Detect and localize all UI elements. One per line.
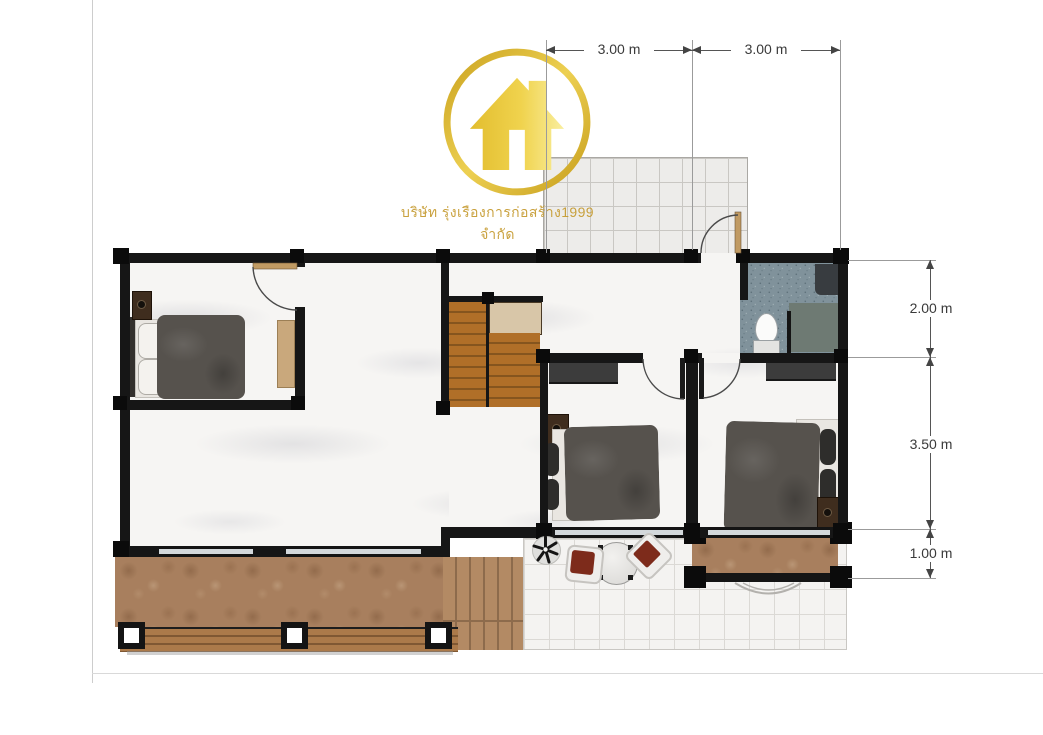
dimension-arrow bbox=[692, 46, 701, 54]
extension-line bbox=[848, 357, 936, 358]
logo-house-icon bbox=[468, 72, 566, 170]
dimension-arrow bbox=[926, 520, 934, 529]
bedroom1-door-arc-icon bbox=[253, 267, 297, 310]
extension-line bbox=[840, 40, 841, 250]
patio-chair-left-seat bbox=[570, 550, 595, 575]
dimension-arrow bbox=[546, 46, 555, 54]
right-bedroom-door-arc-icon bbox=[703, 359, 740, 398]
dimension-arrow bbox=[926, 260, 934, 269]
dimension-arrow bbox=[831, 46, 840, 54]
plant-icon bbox=[530, 534, 561, 565]
right-bedroom-door-leaf bbox=[699, 358, 704, 399]
dimension-label-top-2: 3.00 m bbox=[731, 41, 801, 58]
bedroom1-door-leaf bbox=[253, 263, 297, 269]
extension-line bbox=[848, 578, 936, 579]
company-watermark-text: บริษัท รุ่งเรืองการก่อสร้าง1999 จำกัด bbox=[385, 202, 610, 220]
dimension-arrow bbox=[926, 357, 934, 366]
extension-line bbox=[692, 40, 693, 250]
dimension-arrow bbox=[926, 529, 934, 538]
table-leg bbox=[628, 575, 633, 580]
dimension-label-right-3: 1.00 m bbox=[896, 545, 966, 562]
house-glyph bbox=[470, 78, 564, 170]
extension-line bbox=[546, 40, 547, 253]
floor-plan-image: บริษัท รุ่งเรืองการก่อสร้าง1999 จำกัด 3.… bbox=[0, 0, 1043, 735]
middle-bedroom-door-leaf bbox=[680, 358, 685, 399]
dimension-arrow bbox=[683, 46, 692, 54]
extension-line bbox=[848, 529, 936, 530]
dimension-label-top-1: 3.00 m bbox=[584, 41, 654, 58]
dimension-label-right-2: 3.50 m bbox=[896, 436, 966, 453]
balcony-door-arc-icon bbox=[701, 215, 738, 253]
dimension-label-right-1: 2.00 m bbox=[896, 300, 966, 317]
extension-line bbox=[848, 260, 936, 261]
middle-bedroom-door-arc-icon bbox=[643, 359, 684, 399]
dimension-arrow bbox=[926, 348, 934, 357]
curved-step-icon bbox=[743, 583, 794, 590]
balcony-door-leaf bbox=[735, 212, 741, 253]
dimension-arrow bbox=[926, 569, 934, 578]
